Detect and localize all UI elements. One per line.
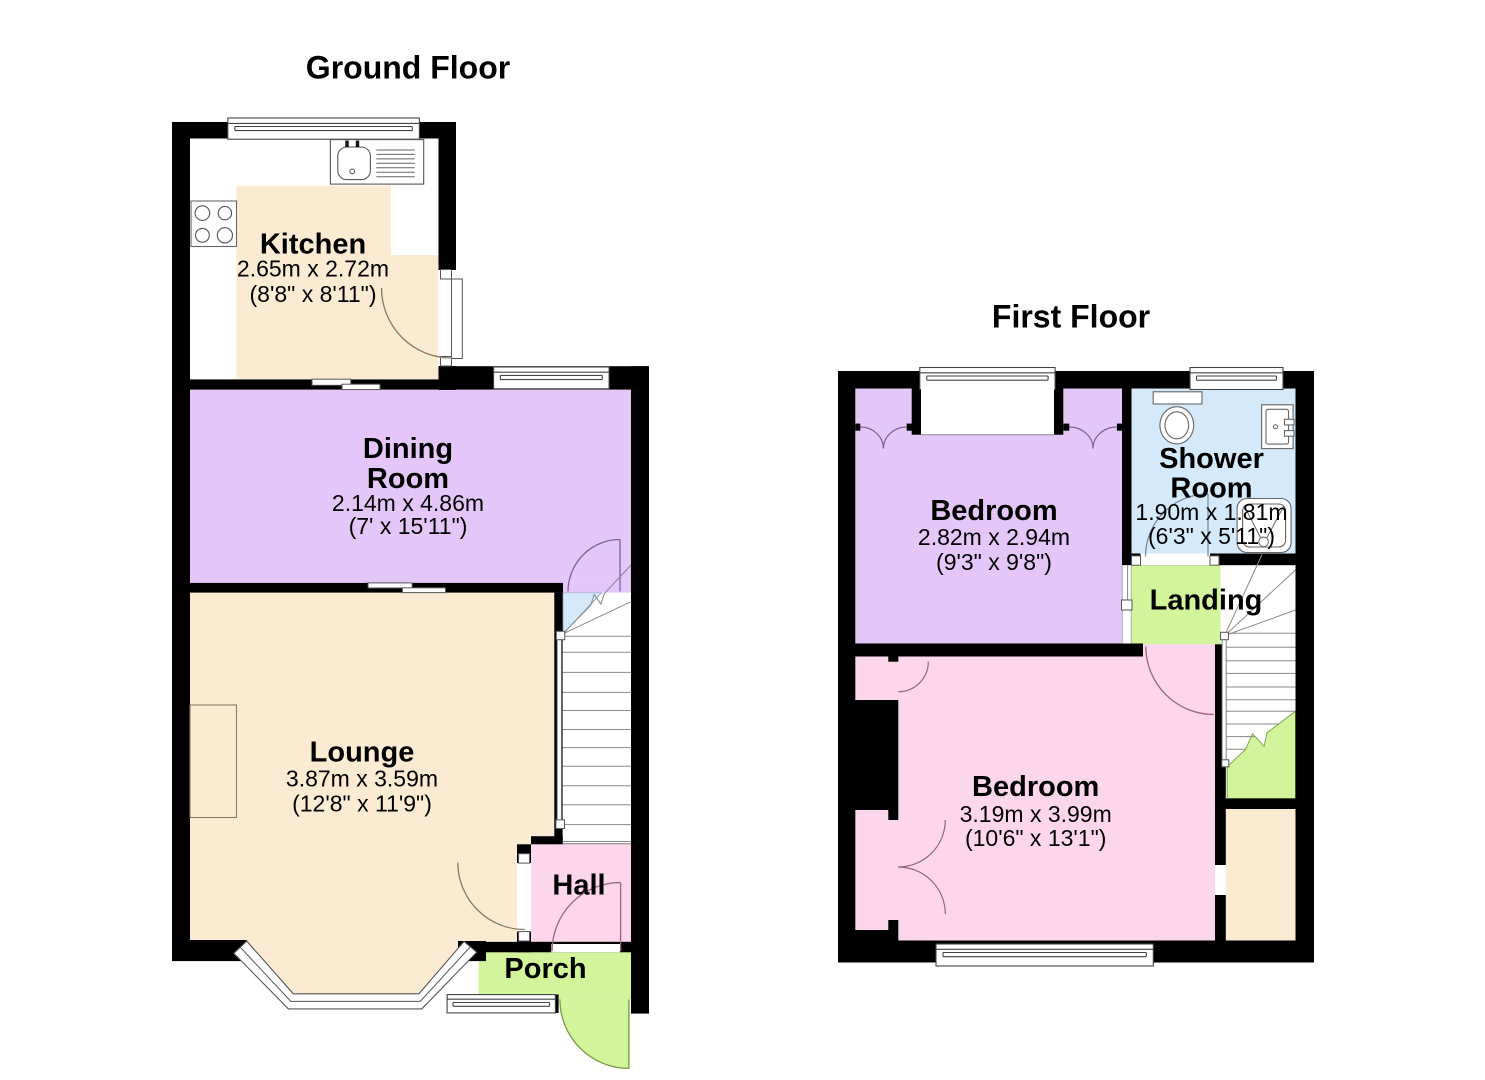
svg-text:(6'3" x 5'11"): (6'3" x 5'11")	[1148, 523, 1275, 549]
svg-text:Dining: Dining	[363, 433, 453, 465]
svg-text:Bedroom: Bedroom	[972, 771, 1099, 803]
svg-text:(8'8" x 8'11"): (8'8" x 8'11")	[250, 281, 377, 307]
svg-text:3.19m x 3.99m: 3.19m x 3.99m	[960, 801, 1112, 827]
svg-text:2.82m x 2.94m: 2.82m x 2.94m	[918, 524, 1070, 550]
svg-text:Ground Floor: Ground Floor	[306, 50, 510, 86]
svg-text:Bedroom: Bedroom	[930, 495, 1057, 527]
svg-text:(10'6" x 13'1"): (10'6" x 13'1")	[965, 825, 1106, 851]
svg-text:(7' x 15'11"): (7' x 15'11")	[349, 513, 468, 539]
svg-text:First Floor: First Floor	[992, 299, 1150, 335]
svg-text:Lounge: Lounge	[310, 737, 415, 769]
svg-text:1.90m x 1.81m: 1.90m x 1.81m	[1135, 499, 1287, 525]
svg-text:Landing: Landing	[1150, 585, 1263, 617]
svg-text:Hall: Hall	[552, 870, 605, 902]
svg-text:Porch: Porch	[504, 953, 586, 985]
svg-text:(12'8" x 11'9"): (12'8" x 11'9")	[292, 791, 432, 817]
svg-text:2.65m x 2.72m: 2.65m x 2.72m	[237, 256, 389, 282]
svg-text:(9'3" x 9'8"): (9'3" x 9'8")	[936, 549, 1052, 575]
svg-text:3.87m x 3.59m: 3.87m x 3.59m	[286, 766, 438, 792]
svg-text:Shower: Shower	[1159, 443, 1264, 475]
